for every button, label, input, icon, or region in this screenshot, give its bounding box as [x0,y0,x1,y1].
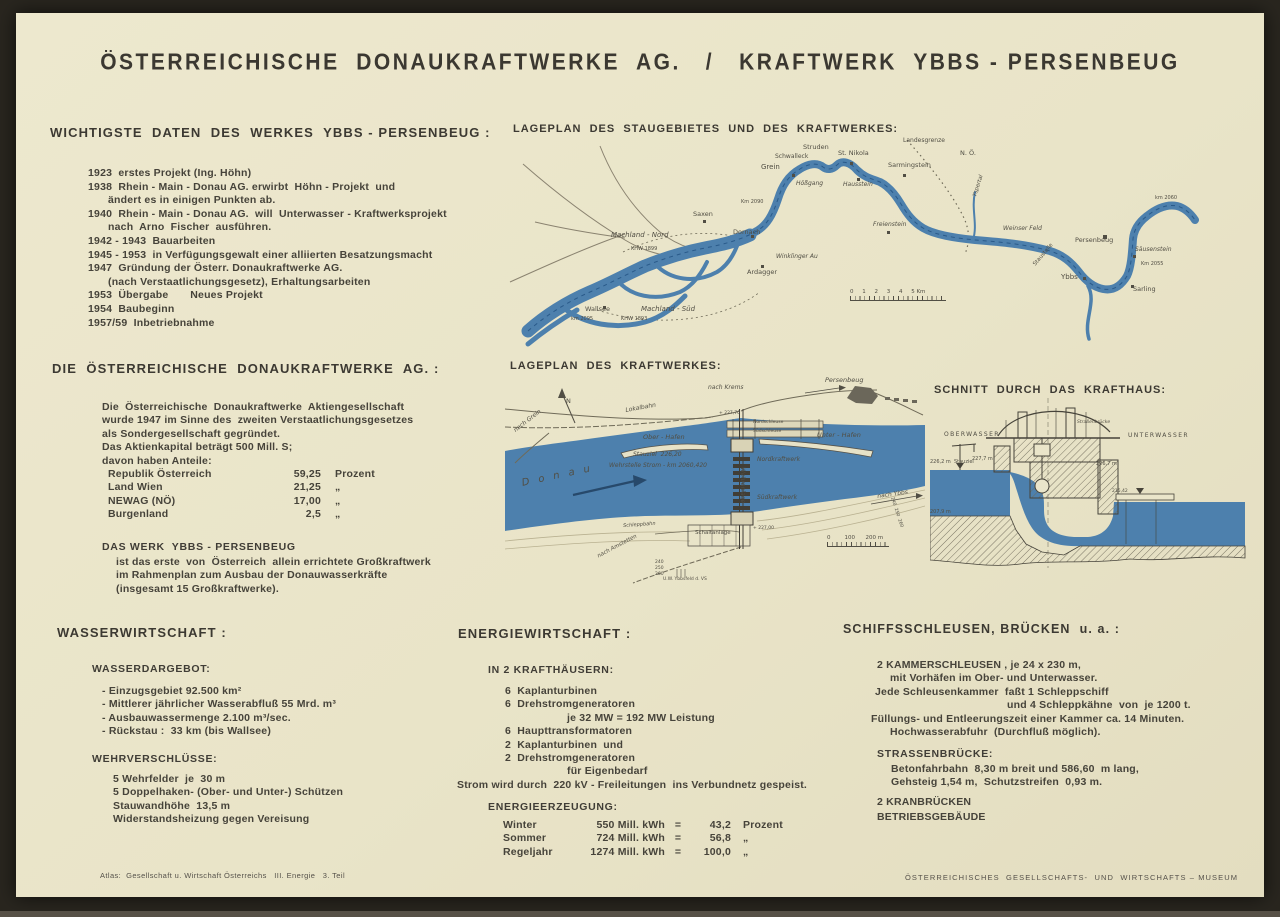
map-label: Persenbeug [1075,237,1113,244]
map-label: Persenbeug [825,377,863,384]
timeline-line: 1954 Baubeginn [88,303,488,317]
dkw-line: davon haben Anteile: [102,455,413,468]
stau-map: LandesgrenzeN. Ö.GreinSchwalleckStrudenS… [505,134,1245,366]
map-label: Ober - Hafen [643,434,685,441]
list-item: Gehsteig 1,54 m, Schutzstreifen 0,93 m. [877,776,1139,789]
map-label: KHW 1899 [631,247,657,252]
dkw-line: als Sondergesellschaft gegründet. [102,428,413,441]
plant-map-scale: 0 100 200 m [827,535,889,547]
map-label: Dornach [733,229,760,236]
wasserdargebot-subheading: WASSERDARGEBOT: [92,663,210,675]
timeline-line: 1945 - 1953 in Verfügungsgewalt einer al… [88,249,488,263]
map-label: 227,7 m [972,457,993,462]
strassenbruecke-list: Betonfahrbahn 8,30 m breit und 586,60 m … [877,763,1139,790]
wasser-heading: WASSERWIRTSCHAFT : [57,625,227,640]
list-item: Betonfahrbahn 8,30 m breit und 586,60 m … [877,763,1139,776]
map-label: St. Nikola [838,150,869,157]
dkw-line: wurde 1947 im Sinne des zweiten Verstaat… [102,414,413,427]
list-item: 5 Wehrfelder je 30 m [113,773,343,786]
wasserdargebot-list: - Einzugsgebiet 92.500 km²- Mittlerer jä… [102,685,336,739]
list-item: 2 KRANBRÜCKEN [877,795,986,810]
map-label: Km 2090 [741,200,763,205]
timeline-line: 1953 Übergabe Neues Projekt [88,289,488,303]
powerhouse-section: OBERWASSERStraßenbrückeUNTERWASSER226,2 … [930,394,1260,576]
table-row: Sommer724 Mill. kWh=56,8„ [503,832,783,845]
dkw-line: Die Österreichische Donaukraftwerke Akti… [102,401,413,414]
map-label: Freienstein [873,222,906,228]
list-item: 5 Doppelhaken- (Ober- und Unter-) Schütz… [113,786,343,799]
dkw-paragraph: Die Österreichische Donaukraftwerke Akti… [102,401,413,468]
strassenbruecke-subheading: STRASSENBRÜCKE: [877,748,993,760]
schleusen-extra-list: 2 KRANBRÜCKENBETRIEBSGEBÄUDE [877,795,986,824]
map-label: 240 250 260 [889,497,903,528]
map-label: Winklinger Au [776,254,818,260]
footer-museum: ÖSTERREICHISCHES GESELLSCHAFTS- UND WIRT… [905,873,1238,882]
list-item: je 32 MW = 192 MW Leistung [505,712,715,725]
timeline-line: 1957/59 Inbetriebnahme [88,317,488,331]
map-label: Wehrstelle Strom - km 2060,420 [609,463,707,469]
map-label: Staustelle [1033,243,1055,267]
map-label: N [566,398,571,405]
list-item: - Rückstau : 33 km (bis Wallsee) [102,725,336,738]
werk-paragraph: ist das erste von Österreich allein erri… [116,556,431,596]
map-label: Machland - Süd [641,306,695,313]
plant-map-labels: nach KremsPersenbeugLokalbahnnach GreinN… [505,371,925,615]
map-label: 215,42 [1112,490,1128,495]
table-row: Winter550 Mill. kWh=43,2Prozent [503,819,783,832]
map-label: km 2095 [571,317,593,322]
krafthaeuser-list: 6 Kaplanturbinen6 Drehstromgeneratorenje… [505,685,715,779]
section-labels: OBERWASSERStraßenbrückeUNTERWASSER226,2 … [930,394,1260,576]
map-label: nach Amstetten [597,534,638,559]
list-item: 2 Kaplanturbinen und [505,739,715,752]
map-label: Saxen [693,211,713,218]
footer-source: Atlas: Gesellschaft u. Wirtschaft Österr… [100,871,345,880]
map-label: 226,7 m [1096,462,1117,467]
map-label: Km 2055 [1141,262,1163,267]
map-label: Yspertal [973,175,985,198]
map-label: Grein [761,164,780,171]
map-label: Südkraftwerk [757,495,797,501]
wehrverschluesse-list: 5 Wehrfelder je 30 m5 Doppelhaken- (Ober… [113,773,343,827]
map-label: Straßenbrücke [1077,421,1110,426]
timeline-line: 1940 Rhein - Main - Donau AG. will Unter… [88,208,488,222]
map-label: nach Krems [708,385,744,391]
list-item: 2 Drehstromgeneratoren [505,752,715,765]
energieerzeugung-table: Winter550 Mill. kWh=43,2ProzentSommer724… [503,819,783,859]
dkw-heading: DIE ÖSTERREICHISCHE DONAUKRAFTWERKE AG. … [52,361,439,376]
list-item: Füllungs- und Entleerungszeit einer Kamm… [861,713,1191,726]
map-label: km 2060 [1155,196,1177,201]
map-label: Nordkraftwerk [757,457,800,463]
map-label: UNTERWASSER [1128,433,1189,439]
map-label: Wallsee [585,306,610,313]
werk-line: ist das erste von Österreich allein erri… [116,556,431,569]
map-label: Unter - Hafen [817,432,861,439]
map-label: + 227,70 [719,412,740,417]
timeline-line: (nach Verstaatlichungsgesetz), Erhaltung… [88,276,488,290]
share-table: Republik Österreich59,25ProzentLand Wien… [108,468,375,522]
map-label: Nordschleuse [753,421,783,426]
map-label: Säusenstein [1135,247,1172,253]
list-item: - Ausbauwassermenge 2.100 m³/sec. [102,712,336,725]
list-item: 6 Haupttransformatoren [505,725,715,738]
map-label: OBERWASSER [944,432,1000,438]
plant-map: nach KremsPersenbeugLokalbahnnach GreinN… [505,371,925,615]
wehrverschluesse-subheading: WEHRVERSCHLÜSSE: [92,753,217,765]
map-label: nach Grein [513,409,543,434]
poster: ÖSTERREICHISCHE DONAUKRAFTWERKE AG. / KR… [16,13,1264,897]
map-label: 207,9 m [930,510,951,515]
daten-heading: WICHTIGSTE DATEN DES WERKES YBBS - PERSE… [50,125,491,140]
schleusen-heading: SCHIFFSSCHLEUSEN, BRÜCKEN u. a. : [843,622,1120,636]
energieerzeugung-subheading: ENERGIEERZEUGUNG: [488,801,618,813]
map-label: Ybbs [1061,274,1078,281]
timeline: 1923 erstes Projekt (Ing. Höhn)1938 Rhei… [88,167,488,330]
share-row: Burgenland2,5„ [108,508,375,521]
map-label: Stauziel 226,20 [633,452,682,458]
map-label: Sarling [1133,286,1156,293]
list-item: Stauwandhöhe 13,5 m [113,800,343,813]
map-label: Hausstein [843,182,873,188]
share-row: NEWAG (NÖ)17,00„ [108,495,375,508]
strom-line: Strom wird durch 220 kV - Freileitungen … [457,779,807,792]
map-label: Struden [803,144,829,151]
list-item: - Mittlerer jährlicher Wasserabfluß 55 M… [102,698,336,711]
table-row: Regeljahr1274 Mill. kWh=100,0„ [503,846,783,859]
map-label: Schaltanlage [695,531,731,537]
map-label: + 227,00 [753,527,774,532]
map-label: Südschleuse [753,430,781,435]
list-item: BETRIEBSGEBÄUDE [877,810,986,825]
list-item: für Eigenbedarf [505,765,715,778]
map-label: D o n a u [521,464,594,489]
timeline-line: ändert es in einigen Punkten ab. [88,194,488,208]
map-label: U.W. Ybbsfeld d. VS [663,578,707,583]
map-label: Lokalbahn [625,403,657,414]
map-label: Ardagger [747,269,777,276]
krafthaeuser-subheading: IN 2 KRAFTHÄUSERN: [488,664,614,676]
share-row: Republik Österreich59,25Prozent [108,468,375,481]
map-label: Machland - Nord [611,232,669,239]
list-item: und 4 Schleppkähne von je 1200 t. [861,699,1191,712]
list-item: 6 Kaplanturbinen [505,685,715,698]
map-label: Weinser Feld [1003,226,1042,232]
map-label: 240 [655,561,664,566]
timeline-line: 1947 Gründung der Österr. Donaukraftwerk… [88,262,488,276]
map-label: Schwalleck [775,154,808,160]
map-label: Schleppbahn [623,522,656,529]
energie-heading: ENERGIEWIRTSCHAFT : [458,626,631,641]
werk-line: im Rahmenplan zum Ausbau der Donauwasser… [116,569,431,582]
map-label: KHW 1893 [621,317,647,322]
poster-title: ÖSTERREICHISCHE DONAUKRAFTWERKE AG. / KR… [16,50,1264,76]
map-label: N. Ö. [960,150,976,157]
map-label: Sarmingstein [888,162,931,169]
share-row: Land Wien21,25„ [108,481,375,494]
stau-map-scale: 0 1 2 3 4 5 Km [850,289,946,301]
list-item: Jede Schleusenkammer faßt 1 Schleppschif… [861,686,1191,699]
map-label: 250 [655,567,664,572]
map-label: Wehranlage [739,467,745,503]
map-label: Landesgrenze [903,138,945,144]
map-label: Hößgang [796,181,823,187]
list-item: - Einzugsgebiet 92.500 km² [102,685,336,698]
timeline-line: nach Arno Fischer ausführen. [88,221,488,235]
schleusen-list: 2 KAMMERSCHLEUSEN , je 24 x 230 m,mit Vo… [861,659,1191,739]
list-item: mit Vorhäfen im Ober- und Unterwasser. [861,672,1191,685]
list-item: Widerstandsheizung gegen Vereisung [113,813,343,826]
map-label: 226,2 m Stauziel [930,460,974,465]
dkw-line: Das Aktienkapital beträgt 500 Mill. S; [102,441,413,454]
list-item: Hochwasserabfuhr (Durchfluß möglich). [861,726,1191,739]
timeline-line: 1938 Rhein - Main - Donau AG. erwirbt Hö… [88,181,488,195]
list-item: 2 KAMMERSCHLEUSEN , je 24 x 230 m, [861,659,1191,672]
map-label: 260 [655,573,664,578]
werk-line: (insgesamt 15 Großkraftwerke). [116,583,431,596]
table-edge [0,911,1280,917]
stau-map-labels: LandesgrenzeN. Ö.GreinSchwalleckStrudenS… [505,134,1245,366]
timeline-line: 1923 erstes Projekt (Ing. Höhn) [88,167,488,181]
timeline-line: 1942 - 1943 Bauarbeiten [88,235,488,249]
list-item: 6 Drehstromgeneratoren [505,698,715,711]
werk-title: DAS WERK YBBS - PERSENBEUG [102,541,296,553]
